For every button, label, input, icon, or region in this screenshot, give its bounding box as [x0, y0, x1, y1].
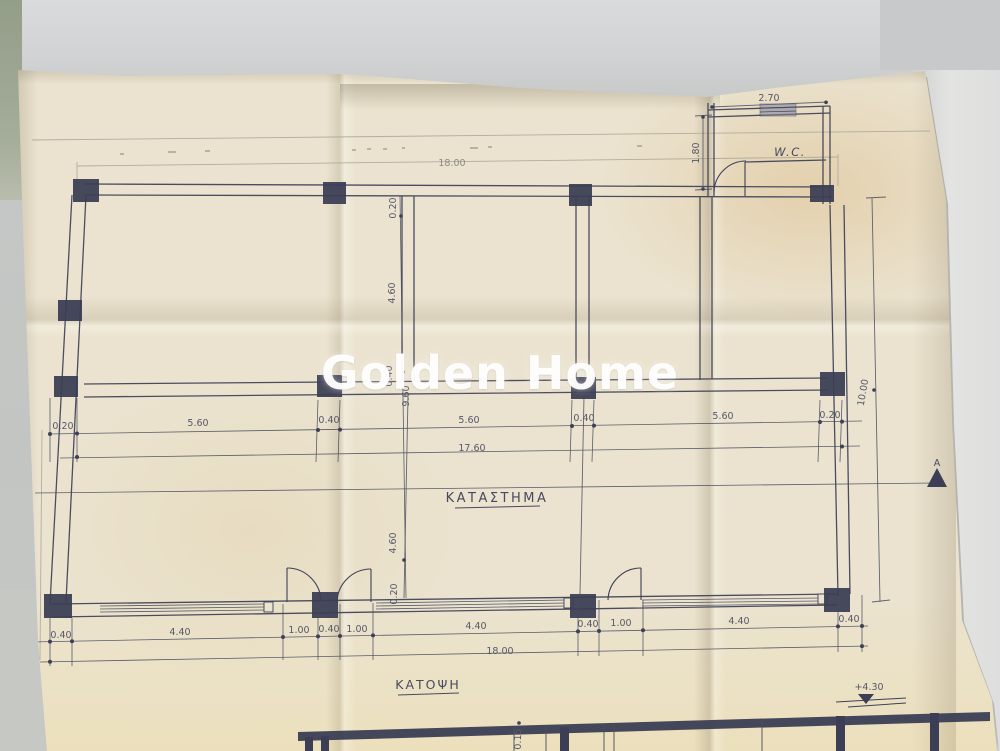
title-underline [398, 693, 459, 695]
room-label-underline [455, 506, 540, 508]
dim-mid-0: 0.20 [52, 421, 73, 432]
dim-mid-1: 5.60 [187, 418, 208, 429]
dim-mid-4: 0.40 [573, 413, 594, 424]
dim-vchain-0: 0.20 [388, 197, 399, 218]
dim-section: 0.15 [513, 728, 524, 749]
dim-bottom-total: 18.00 [486, 646, 513, 657]
photo-of-floor-plan: 18.00 [0, 0, 1000, 751]
dim-wc-depth: 1.80 [691, 142, 702, 163]
dim-bot-3: 0.40 [318, 624, 339, 635]
dim-bot-8: 4.40 [728, 616, 749, 627]
dim-bot-6: 0.40 [577, 619, 598, 630]
dim-bot-0: 0.40 [50, 630, 71, 641]
storefront-glazing [100, 598, 820, 612]
blueprint-paper: 18.00 [0, 0, 1000, 751]
dim-right-total: 10.00 [856, 378, 872, 407]
lower-section-drawing: 0.15 +4.30 [298, 682, 990, 751]
wall-topright [880, 0, 1000, 70]
drawing-title-katopsi: ΚΑΤΟΨΗ [395, 677, 460, 692]
watermark: Golden Home [321, 346, 679, 400]
section-marker-right: A [927, 458, 947, 487]
dimension-lines [30, 196, 935, 666]
wc-window [760, 104, 796, 116]
dim-bot-9: 0.40 [838, 614, 859, 625]
dim-mid-total: 17.60 [458, 443, 485, 454]
dim-mid-2: 0.40 [318, 415, 339, 426]
dim-bot-1: 4.40 [169, 627, 190, 638]
dim-wc-width: 2.70 [758, 93, 779, 104]
room-label-katastima: ΚΑΤΑΣΤΗΜΑ [446, 491, 549, 506]
dim-bot-7: 1.00 [610, 618, 631, 629]
dim-bot-2: 1.00 [288, 625, 309, 636]
dim-top-total: 18.00 [438, 158, 465, 169]
dim-bot-4: 1.00 [346, 624, 367, 635]
level-triangle [858, 694, 874, 704]
pencil-marks [120, 146, 642, 154]
dim-vchain-5: 0.20 [389, 583, 400, 604]
wall-green-edge [0, 0, 22, 200]
dim-vchain-1: 4.60 [387, 282, 398, 303]
dim-bot-5: 4.40 [465, 621, 486, 632]
dim-mid-3: 5.60 [458, 415, 479, 426]
wc-label: W.C. [774, 145, 806, 159]
dim-mid-6: 0.20 [819, 410, 840, 421]
dim-mid-5: 5.60 [712, 411, 733, 422]
dim-vchain-4: 4.60 [388, 532, 399, 553]
level-annotation: +4.30 [854, 682, 883, 693]
section-letter: A [934, 458, 941, 469]
